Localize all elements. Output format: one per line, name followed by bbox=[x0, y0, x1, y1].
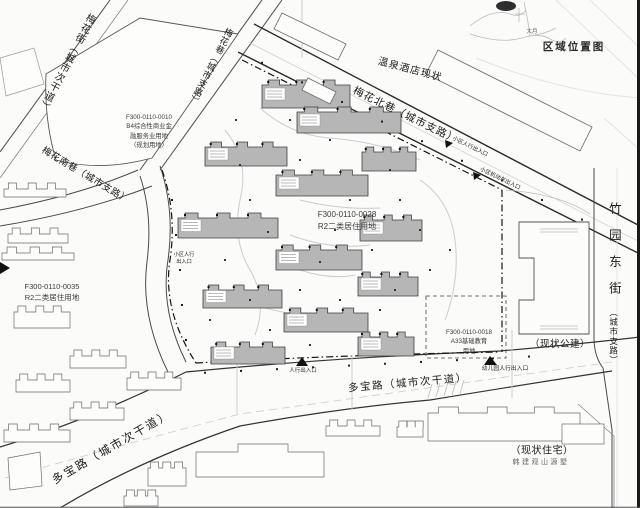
road-label-zhuyuan-east-street: 竹园东街 bbox=[606, 202, 620, 308]
parcel-label-b4: F300-0110-0010 B4综合性商业金 融服务业用地 （规划用地） bbox=[126, 113, 172, 151]
parcel-use-line: （规划用地） bbox=[126, 141, 172, 150]
site-plan: 梅花街（城市次干道） 梅花巷（城市支路） 梅花南巷（城市支路） 梅花北巷（城市支… bbox=[0, 0, 640, 508]
site-plan-drawing bbox=[0, 0, 640, 508]
inset-site-marker bbox=[496, 1, 516, 11]
residence-parcel-boundary bbox=[578, 404, 614, 508]
region-map-caption: 区域位置图 bbox=[543, 42, 606, 54]
parcel-code: F300-0110-0010 bbox=[126, 113, 172, 122]
existing-residence-label: （现状住宅） bbox=[511, 446, 574, 457]
inset-place-label: 大月 bbox=[526, 29, 537, 35]
parcel-label-r2-west: F300-0110-0035 R2二类居住用地 bbox=[25, 281, 80, 304]
residence-project-name: 韩建观山源墅 bbox=[513, 459, 570, 467]
kindergarten-entrance-label: 幼儿园人行出入口 bbox=[482, 366, 528, 372]
parcel-label-r2-center: F300-0110-0028 R2二类居住用地 bbox=[318, 209, 377, 233]
parcel-code: F300-0110-0035 bbox=[25, 281, 80, 292]
public-building bbox=[506, 190, 590, 334]
parcel-use-line: A33基础教育 bbox=[446, 337, 492, 346]
inset-region-map bbox=[470, 1, 566, 42]
community-ped-entrance-west-label: 小区人行出入口 bbox=[173, 252, 195, 265]
parcel-code: F300-0110-0018 bbox=[446, 328, 492, 337]
parcel-label-a33: F300-0110-0018 A33基础教育 用地 bbox=[446, 328, 492, 356]
parcel-use-line: B4综合性商业金 bbox=[126, 123, 172, 132]
parcel-use-line: R2二类居住用地 bbox=[25, 292, 80, 303]
existing-public-building-label: （现状公建） bbox=[530, 340, 590, 350]
parcel-use-line: R2二类居住用地 bbox=[318, 221, 377, 233]
entrance-triangle-kindergarten bbox=[484, 356, 497, 365]
ped-entrance-south-label: 人行出入口 bbox=[289, 368, 317, 374]
entrance-triangle-west bbox=[0, 262, 10, 274]
parcel-code: F300-0110-0028 bbox=[318, 209, 377, 221]
road-label-zhuyuan-class: （城市支路） bbox=[608, 308, 617, 365]
parcel-use-line: 用地 bbox=[446, 347, 492, 356]
parcel-use-line: 融服务业用地 bbox=[126, 132, 172, 141]
